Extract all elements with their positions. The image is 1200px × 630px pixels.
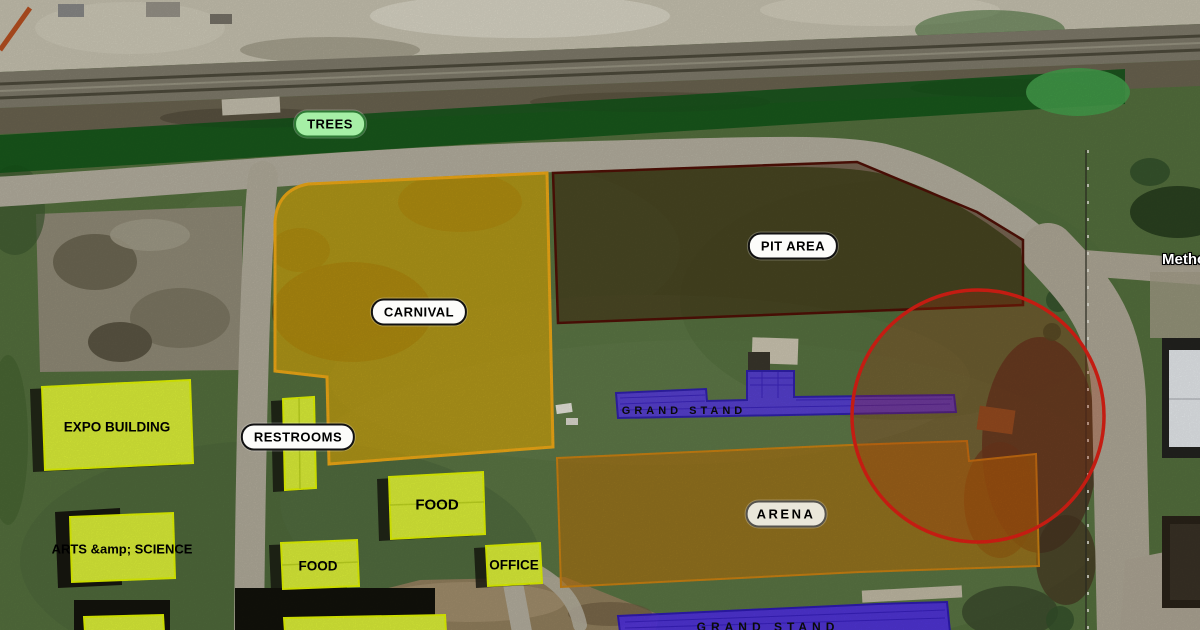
food-north-label: FOOD (415, 497, 458, 514)
restrooms-label: RESTROOMS (241, 424, 355, 451)
trees-label: TREES (294, 111, 366, 138)
carnival-label: CARNIVAL (371, 299, 467, 326)
street-place-label: Metho (1162, 251, 1200, 268)
grandstand-south-label: GRAND STAND (697, 620, 840, 630)
grandstand-main-label: GRAND STAND (622, 405, 746, 417)
noise-texture (0, 0, 1200, 630)
food-south-label: FOOD (299, 559, 338, 574)
expo-building-label: EXPO BUILDING (64, 420, 171, 435)
office-label: OFFICE (489, 558, 539, 573)
arts-science-label: ARTS &amp; SCIENCE (52, 542, 193, 557)
fairgrounds-map: TREES PIT AREA CARNIVAL RESTROOMS ARENA … (0, 0, 1200, 630)
arena-label: ARENA (746, 501, 827, 528)
pit-area-label: PIT AREA (748, 233, 838, 260)
aerial-imagery (0, 0, 1200, 630)
